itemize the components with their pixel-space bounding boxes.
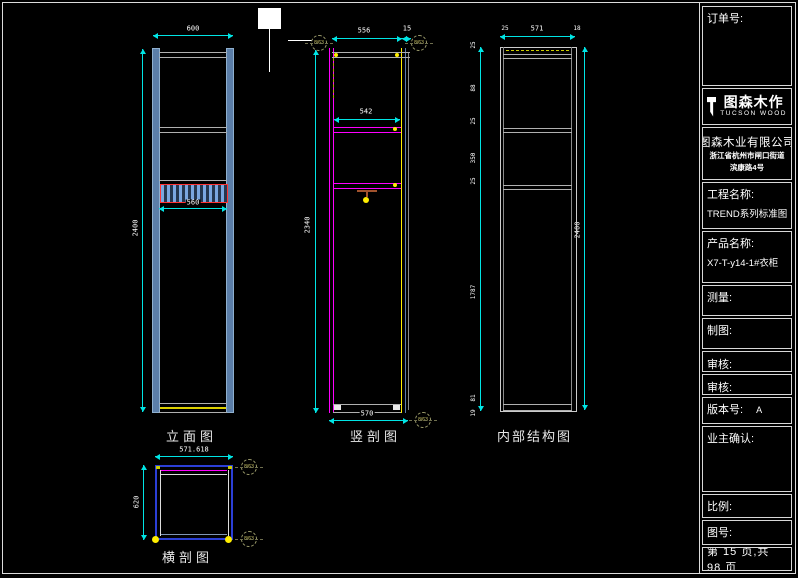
section-bottom-dim-line (329, 420, 408, 421)
edge-band-dashes (333, 58, 334, 98)
hanger-rod-symbol (363, 197, 369, 203)
company-address-line2: 滨康路4号 (730, 162, 764, 173)
scale-box: 比例: (702, 494, 792, 518)
elevation-width-dim: 600 (186, 26, 201, 33)
project-box: 工程名称: TREND系列标准图 (702, 182, 792, 229)
tucson-wood-logo-icon (707, 97, 716, 117)
company-name: 图森木业有限公司 (702, 134, 792, 150)
elevation-view-label: 立面图 (166, 426, 217, 445)
section-right-panel-blue (405, 48, 406, 413)
section-panel-dim-line (402, 38, 411, 39)
plan-view-label: 横剖图 (162, 547, 213, 566)
version-box: 版本号: A (702, 397, 792, 424)
section-panel-dim: 15 (402, 26, 412, 33)
elevation-top-panel (159, 52, 227, 58)
plan-callout-bottom: 8/63 (241, 531, 257, 547)
section-shelf-2 (333, 183, 401, 189)
survey-box: 测量: (702, 285, 792, 316)
draft-label: 制图: (707, 325, 732, 337)
callout-label: 8/63 (244, 537, 254, 542)
section-bottom-dim: 570 (360, 411, 375, 418)
review-box-2: 审核: (702, 374, 792, 395)
structure-width-dim: 571 (530, 26, 545, 33)
section-left-panel (329, 48, 334, 413)
cam-fitting-dot (334, 53, 338, 57)
plan-outline (155, 465, 233, 540)
elevation-drawer-dim: 560 (186, 200, 201, 207)
cad-sheet: 600 2400 560 立面图 8/63 8/63 556 15 2340 5… (0, 0, 798, 578)
chain-dim-4: 25 (471, 177, 477, 184)
section-callout-top-left: 8/63 (311, 35, 327, 51)
leveler-block-right (393, 405, 400, 410)
structure-right-inner (571, 47, 572, 410)
version-value: A (756, 405, 762, 415)
section-right-panel-yellow (401, 48, 402, 413)
structure-bottom-panel (503, 404, 572, 411)
callout-label: 8/63 (418, 418, 428, 423)
page-info-box: 第 15 页,共 98 页 (702, 547, 792, 571)
company-box: 图森木业有限公司 浙江省杭州市闸口街道 滨康路4号 (702, 127, 792, 180)
structure-left-inner (503, 47, 504, 410)
elevation-height-dim: 2400 (133, 220, 140, 237)
section-view-label: 竖剖图 (350, 426, 401, 445)
chain-dim-1: 88 (471, 84, 477, 91)
elevation-right-panel (227, 49, 233, 412)
elevation-drawer-dim-line (159, 208, 227, 209)
structure-shelf-2 (503, 185, 572, 190)
callout-label: 8/63 (414, 41, 424, 46)
elevation-width-dim-line (153, 35, 233, 36)
owner-confirm-label: 业主确认: (707, 433, 754, 445)
corner-hardware-dot (225, 536, 232, 543)
order-number-box: 订单号: (702, 6, 792, 86)
scale-label: 比例: (707, 501, 732, 513)
structure-shelf-1 (503, 128, 572, 133)
elevation-height-dim-line (142, 49, 143, 412)
survey-label: 测量: (707, 292, 732, 304)
plan-back-line-white (161, 474, 227, 475)
structure-left-dim: 25 (500, 26, 509, 32)
chain-dim-5: 1787 (471, 285, 477, 299)
plan-back-line-magenta (161, 470, 227, 471)
plan-width-dim-line (155, 456, 233, 457)
edge-band-mark (156, 466, 160, 469)
project-label: 工程名称: (707, 189, 754, 201)
cam-fitting-dot (395, 53, 399, 57)
elevation-left-panel (153, 49, 159, 412)
review-label: 审核: (707, 359, 732, 371)
owner-confirm-box: 业主确认: (702, 426, 792, 492)
review-box-1: 审核: (702, 351, 792, 372)
plan-depth-dim-line (143, 465, 144, 540)
company-address-line1: 浙江省杭州市闸口街道 (710, 150, 785, 161)
section-height-dim: 2340 (305, 217, 312, 234)
section-width-dim: 556 (357, 28, 372, 35)
elevation-base-strip (160, 407, 226, 409)
logo-subtitle: TUCSON WOOD (720, 111, 787, 118)
corner-hardware-dot (152, 536, 159, 543)
structure-yellow-dashes (506, 50, 569, 51)
logo-box: 图森木作 TUCSON WOOD (702, 88, 792, 125)
section-callout-bottom: 8/63 (415, 412, 431, 428)
section-width-dim-line (332, 38, 402, 39)
callout-label: 8/63 (314, 41, 324, 46)
edge-band-mark (228, 466, 232, 469)
section-shelf-1 (333, 127, 401, 133)
plan-callout-top: 8/63 (241, 459, 257, 475)
structure-view-label: 内部结构图 (497, 426, 572, 445)
structure-top-panel (503, 54, 572, 59)
section-height-dim-line (315, 50, 316, 413)
logo-name: 图森木作 (724, 95, 784, 109)
structure-width-dim-line (500, 36, 575, 37)
plan-depth-dim: 620 (134, 496, 141, 509)
structure-height-dim-line (584, 47, 585, 410)
titleblock-divider (699, 2, 700, 573)
plan-width-dim: 571.618 (178, 447, 210, 454)
product-box: 产品名称: X7-T-y14-1#衣柜 (702, 231, 792, 283)
structure-outline (500, 47, 577, 412)
cursor-horizontal-line (288, 40, 312, 41)
drawing-number-label: 图号: (707, 527, 732, 539)
cam-fitting-dot (393, 183, 397, 187)
structure-right-dim: 18 (572, 26, 581, 32)
product-label: 产品名称: (707, 238, 754, 250)
leveler-block-left (334, 405, 341, 410)
elevation-shelf-2 (159, 180, 227, 181)
elevation-shelf-1 (159, 127, 227, 133)
draft-box: 制图: (702, 318, 792, 349)
callout-label: 8/63 (244, 465, 254, 470)
chain-dim-0: 25 (471, 41, 477, 48)
chain-dim-2: 25 (471, 117, 477, 124)
version-label: 版本号: (707, 404, 743, 416)
cursor-vertical-line (269, 29, 270, 72)
plan-left-inner (160, 470, 161, 536)
structure-chain-dim-line (480, 47, 481, 411)
product-value: X7-T-y14-1#衣柜 (707, 255, 787, 269)
section-callout-top-right: 8/63 (411, 35, 427, 51)
cam-fitting-dot (393, 127, 397, 131)
order-number-label: 订单号: (707, 13, 743, 25)
chain-dim-6: 81 (471, 394, 477, 401)
drawing-number-box: 图号: (702, 520, 792, 545)
chain-dim-7: 19 (471, 409, 477, 416)
page-info: 第 15 页,共 98 页 (707, 547, 787, 571)
section-shelf-dim: 542 (359, 109, 374, 116)
project-value: TREND系列标准图 (707, 206, 787, 220)
review2-label: 审核: (707, 382, 732, 394)
sheet-border (2, 2, 796, 574)
cursor-pickbox (258, 8, 281, 29)
plan-right-inner (228, 470, 229, 536)
chain-dim-3: 350 (471, 153, 477, 164)
section-back-panel (408, 52, 409, 410)
section-shelf-dim-line (334, 119, 400, 120)
plan-front-line (161, 534, 227, 535)
